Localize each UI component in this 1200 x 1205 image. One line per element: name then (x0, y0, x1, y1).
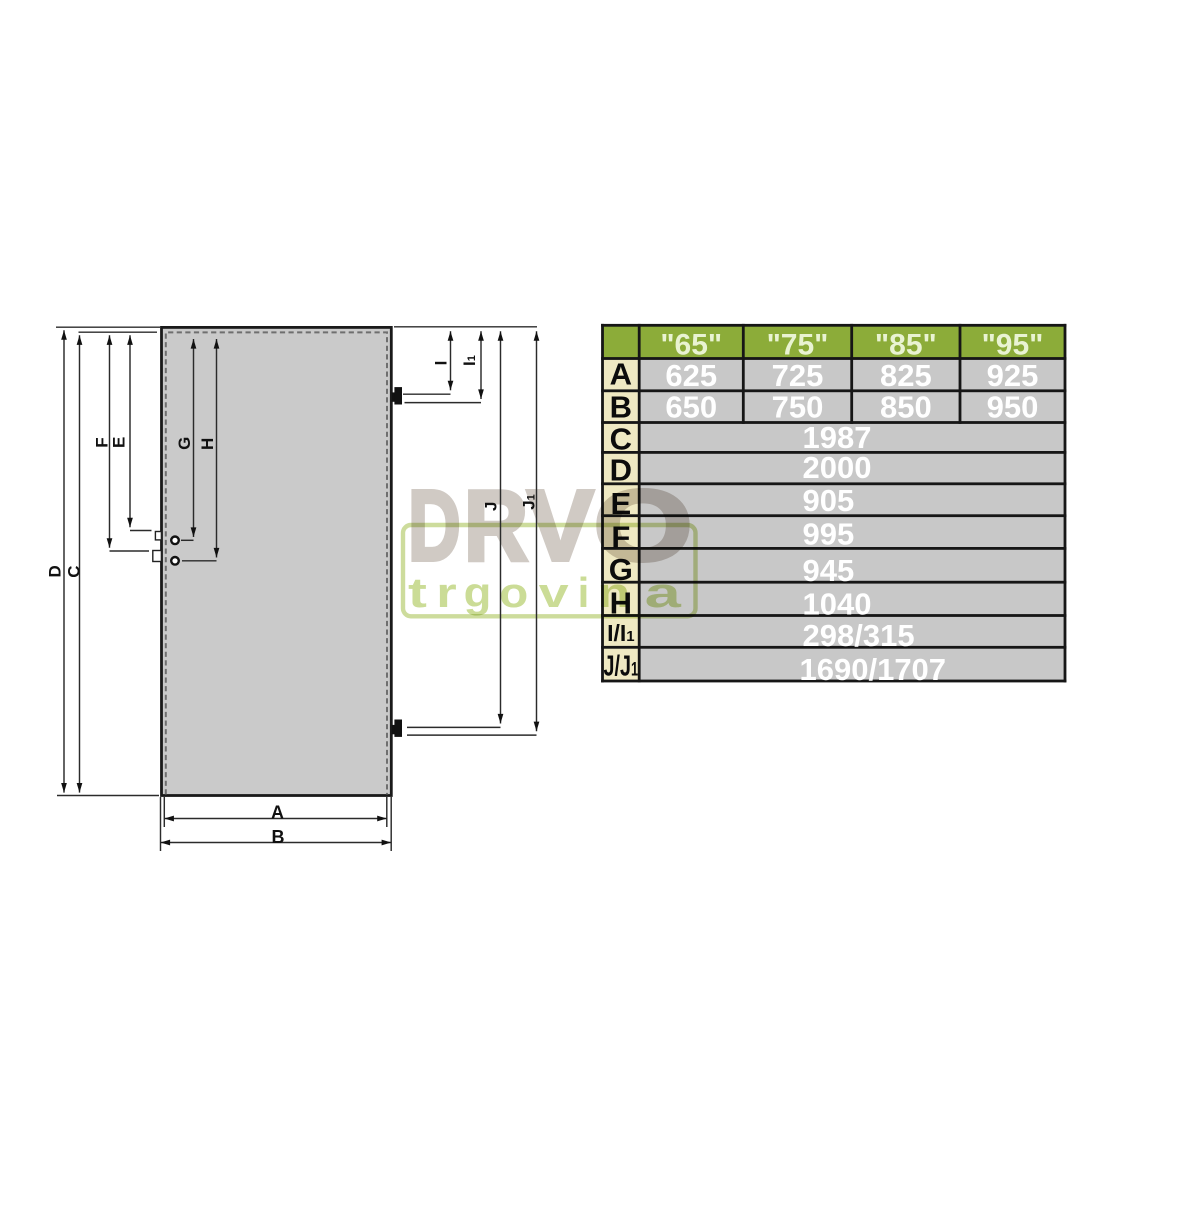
svg-text:2000: 2000 (803, 450, 872, 485)
svg-text:v: v (539, 570, 569, 617)
svg-text:t: t (408, 569, 427, 616)
svg-text:n: n (597, 570, 630, 617)
svg-text:H: H (198, 438, 217, 450)
svg-text:o: o (499, 570, 528, 617)
svg-text:E: E (109, 437, 128, 448)
svg-text:D: D (45, 565, 64, 577)
svg-text:I1: I1 (460, 355, 479, 366)
svg-text:1040: 1040 (803, 587, 872, 622)
svg-text:i: i (578, 569, 590, 616)
svg-text:825: 825 (880, 358, 932, 393)
svg-text:a: a (645, 569, 682, 617)
svg-text:G: G (175, 437, 194, 450)
svg-text:945: 945 (803, 553, 855, 588)
svg-text:B: B (272, 827, 285, 847)
svg-text:"95": "95" (982, 328, 1044, 361)
svg-text:"85": "85" (875, 328, 937, 361)
svg-text:r: r (436, 570, 456, 617)
svg-text:J: J (481, 502, 500, 511)
svg-text:298/315: 298/315 (803, 618, 915, 653)
svg-text:850: 850 (880, 390, 932, 425)
svg-text:g: g (464, 570, 492, 617)
svg-text:650: 650 (665, 390, 717, 425)
svg-text:O: O (594, 471, 693, 582)
svg-text:D: D (408, 470, 461, 582)
svg-text:A: A (271, 803, 284, 823)
svg-text:"65": "65" (660, 328, 722, 361)
svg-text:"75": "75" (767, 328, 829, 361)
svg-text:905: 905 (803, 483, 855, 518)
svg-text:625: 625 (665, 358, 717, 393)
svg-text:A: A (610, 357, 632, 392)
svg-text:725: 725 (772, 358, 824, 393)
svg-text:1690/1707: 1690/1707 (800, 652, 947, 687)
svg-text:C: C (610, 421, 632, 456)
svg-text:950: 950 (987, 390, 1039, 425)
svg-text:R: R (464, 470, 528, 582)
svg-text:995: 995 (803, 517, 855, 552)
svg-text:I: I (431, 361, 450, 366)
svg-text:925: 925 (987, 358, 1039, 393)
svg-text:C: C (65, 565, 84, 577)
svg-text:B: B (610, 390, 632, 425)
